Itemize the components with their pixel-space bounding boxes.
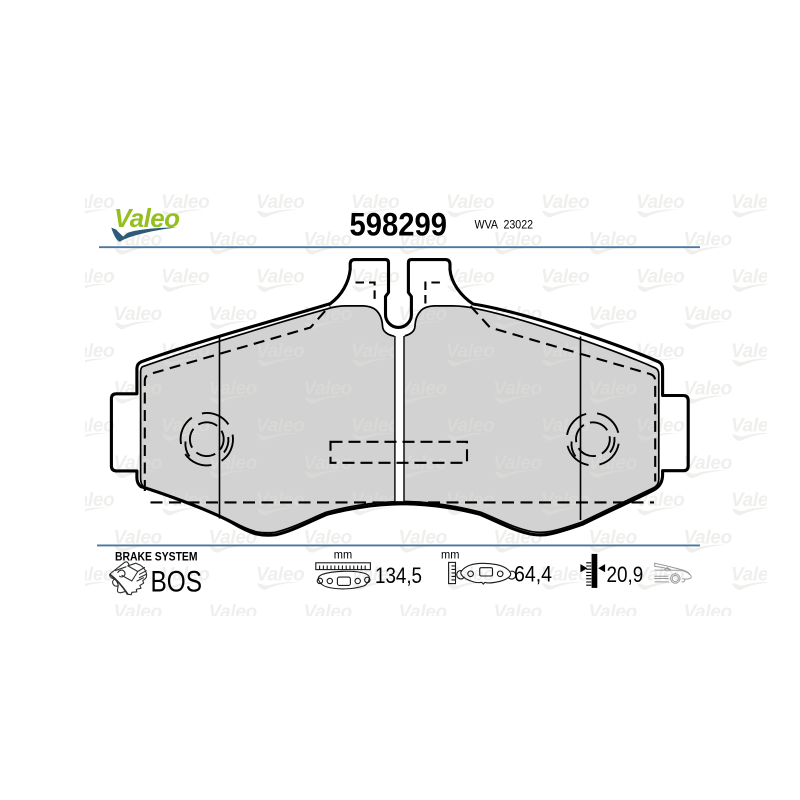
svg-text:WVA: WVA <box>475 218 499 232</box>
svg-text:598299: 598299 <box>350 207 448 243</box>
svg-text:23022: 23022 <box>504 218 534 232</box>
svg-text:20,9: 20,9 <box>607 562 644 587</box>
svg-text:BOS: BOS <box>151 566 203 599</box>
svg-text:64,4: 64,4 <box>514 562 552 587</box>
svg-text:mm: mm <box>334 550 352 562</box>
svg-text:Valeo: Valeo <box>114 203 180 233</box>
svg-text:134,5: 134,5 <box>375 563 422 588</box>
svg-text:mm: mm <box>441 550 459 562</box>
